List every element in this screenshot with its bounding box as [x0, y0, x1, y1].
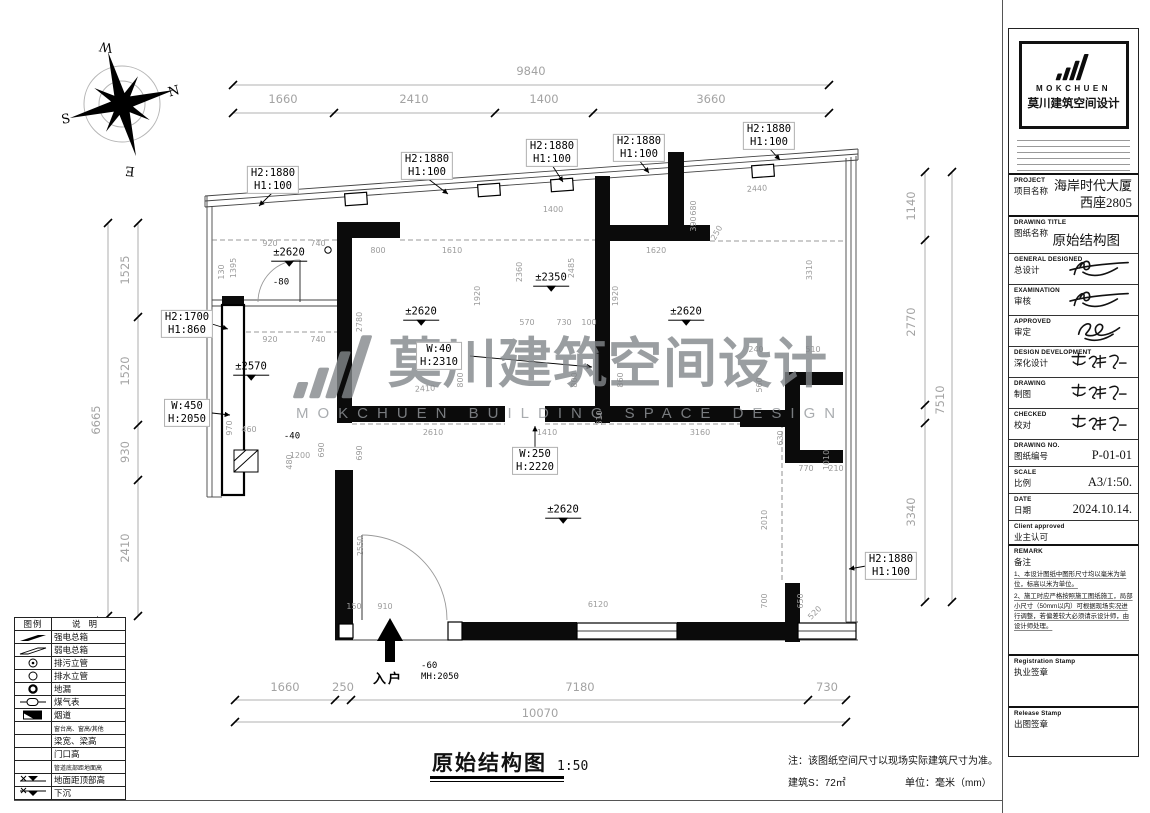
footer-unit: 单位：毫米（mm）	[905, 774, 992, 789]
legend-row: 排污立管	[15, 657, 126, 670]
legend-row: 强电总箱	[15, 631, 126, 644]
field-label-en: Release Stamp	[1014, 710, 1133, 717]
footer-area: 建筑S：72㎡	[788, 774, 846, 789]
titleblock-field-release-stamp: Release Stamp出图签章	[1009, 706, 1138, 752]
titleblock-field-date: DATE日期2024.10.14.	[1009, 493, 1138, 520]
legend-row: 门口高	[15, 748, 126, 761]
field-value: 原始结构图	[1053, 232, 1121, 250]
drawing-sheet: { "watermark": {"cn": "莫川建筑空间设计", "en": …	[0, 0, 1150, 813]
legend-row: 地面距顶部高	[15, 774, 126, 787]
titleblock-field-project: PROJECT项目名称海岸时代大厦 西座2805	[1009, 173, 1138, 215]
legend-row: 排水立管	[15, 670, 126, 683]
titleblock-field-remark: REMARK备注1、本设计图纸中图形尺寸均以毫米为单位，标高以米为单位。2、施工…	[1009, 544, 1138, 654]
title-underline-thick	[430, 776, 564, 779]
signature	[1060, 286, 1136, 314]
legend-header-desc: 说明	[52, 618, 126, 631]
field-value: P-01-01	[1092, 447, 1132, 463]
floor-plan-drawing	[0, 0, 1150, 813]
legend-label: 地面距顶部高	[52, 774, 126, 787]
brand-en: MOKCHUEN	[1036, 84, 1111, 93]
signature	[1060, 317, 1136, 345]
titleblock-field-checked: CHECKED校对	[1009, 408, 1138, 439]
level-top-icon	[15, 774, 52, 787]
field-label-en: Client approved	[1014, 523, 1133, 530]
remark-notes: 1、本设计图纸中图形尺寸均以毫米为单位，标高以米为单位。2、施工时应严格按照施工…	[1014, 570, 1133, 633]
field-label-en: Registration Stamp	[1014, 658, 1133, 665]
gas-meter-icon	[15, 696, 52, 709]
titleblock-field-drawing: DRAWING制图	[1009, 377, 1138, 408]
field-label-cn: 出图签章	[1014, 718, 1133, 730]
legend-label: 烟道	[52, 709, 126, 722]
sewage-icon	[15, 657, 52, 670]
legend-label: 煤气表	[52, 696, 126, 709]
level-sink-icon	[15, 787, 52, 800]
titleblock-field-registration-stamp: Registration Stamp执业签章	[1009, 654, 1138, 706]
field-label-cn: 备注	[1014, 556, 1133, 568]
legend-label: 地漏	[52, 683, 126, 696]
legend-symbol-empty	[15, 735, 52, 748]
drawing-title-footer: 原始结构图1:50	[432, 747, 588, 777]
mokchuen-logo-icon	[1055, 51, 1093, 81]
signature	[1060, 410, 1136, 438]
signature	[1060, 255, 1136, 283]
legend-row: 弱电总箱	[15, 644, 126, 657]
outer-boundary	[205, 149, 858, 640]
legend-row: 烟道	[15, 709, 126, 722]
floor-drain-icon	[15, 683, 52, 696]
field-label-cn: 业主认可	[1014, 531, 1133, 543]
footer-title: 原始结构图	[432, 752, 547, 775]
legend-symbol-empty	[15, 761, 52, 774]
signature	[1060, 348, 1136, 376]
legend-row: 下沉	[15, 787, 126, 800]
flue-shaft	[234, 450, 258, 472]
legend-label: 下沉	[52, 787, 126, 800]
brand-cn: 莫川建筑空间设计	[1028, 95, 1120, 111]
sheet-frame-vertical	[1002, 0, 1003, 813]
titleblock-field-scale: SCALE比例A3/1:50.	[1009, 466, 1138, 493]
titleblock-field-general-designed: GENERAL DESIGNED总设计	[1009, 253, 1138, 284]
legend-symbol-empty	[15, 748, 52, 761]
entry-arrow-icon	[377, 618, 403, 662]
weak-box-icon	[15, 644, 52, 657]
flue-icon	[15, 709, 52, 722]
title-block-logo-box: MOKCHUEN 莫川建筑空间设计	[1019, 41, 1129, 129]
pipe-symbol	[325, 247, 331, 253]
legend-header-symbol: 图例	[15, 618, 52, 631]
titleblock-field-examination: EXAMINATION审核	[1009, 284, 1138, 315]
legend-row: 煤气表	[15, 696, 126, 709]
compass-icon	[56, 38, 188, 170]
sheet-frame-horizontal	[14, 800, 1003, 801]
title-underline-thin	[430, 781, 564, 782]
legend-label: 门口高	[52, 748, 126, 761]
drain-icon	[15, 670, 52, 683]
field-label-en: DRAWING TITLE	[1014, 219, 1133, 226]
legend-symbol-empty	[15, 722, 52, 735]
ruled-notes-area	[1017, 135, 1130, 173]
field-label-cn: 执业签章	[1014, 666, 1133, 678]
legend-row: 地漏	[15, 683, 126, 696]
windows-and-piers	[222, 164, 856, 640]
legend-table: 图例 说明 强电总箱弱电总箱排污立管排水立管地漏煤气表烟道窗台高、窗高/其他梁宽…	[14, 617, 126, 800]
legend-label: 管道底部距地面高	[52, 761, 126, 774]
legend-row: 窗台高、窗高/其他	[15, 722, 126, 735]
walls	[222, 152, 843, 642]
footer-note: 注：该图纸空间尺寸以现场实际建筑尺寸为准。	[788, 752, 998, 767]
legend-row: 管道底部距地面高	[15, 761, 126, 774]
legend-label: 排水立管	[52, 670, 126, 683]
titleblock-field-drawing-title: DRAWING TITLE图纸名称原始结构图	[1009, 215, 1138, 253]
field-label-en: REMARK	[1014, 548, 1133, 555]
legend-row: 梁宽、梁高	[15, 735, 126, 748]
titleblock-field-drawing-no-: DRAWING NO.图纸编号P-01-01	[1009, 439, 1138, 466]
leader-arrows	[212, 148, 866, 569]
titleblock-field-approved: APPROVED审定	[1009, 315, 1138, 346]
legend-label: 窗台高、窗高/其他	[52, 722, 126, 735]
field-value: 2024.10.14.	[1073, 501, 1132, 517]
field-value: A3/1:50.	[1088, 474, 1132, 490]
field-value: 海岸时代大厦 西座2805	[1054, 178, 1132, 212]
signature	[1060, 379, 1136, 407]
titleblock-field-client-approved: Client approved业主认可	[1009, 520, 1138, 544]
legend-label: 梁宽、梁高	[52, 735, 126, 748]
legend-label: 强电总箱	[52, 631, 126, 644]
title-block: MOKCHUEN 莫川建筑空间设计 PROJECT项目名称海岸时代大厦 西座28…	[1008, 28, 1139, 757]
strong-box-icon	[15, 631, 52, 644]
legend-label: 弱电总箱	[52, 644, 126, 657]
titleblock-field-design-development: DESIGN DEVELOPMENT深化设计	[1009, 346, 1138, 377]
footer-scale: 1:50	[557, 759, 588, 774]
legend-label: 排污立管	[52, 657, 126, 670]
